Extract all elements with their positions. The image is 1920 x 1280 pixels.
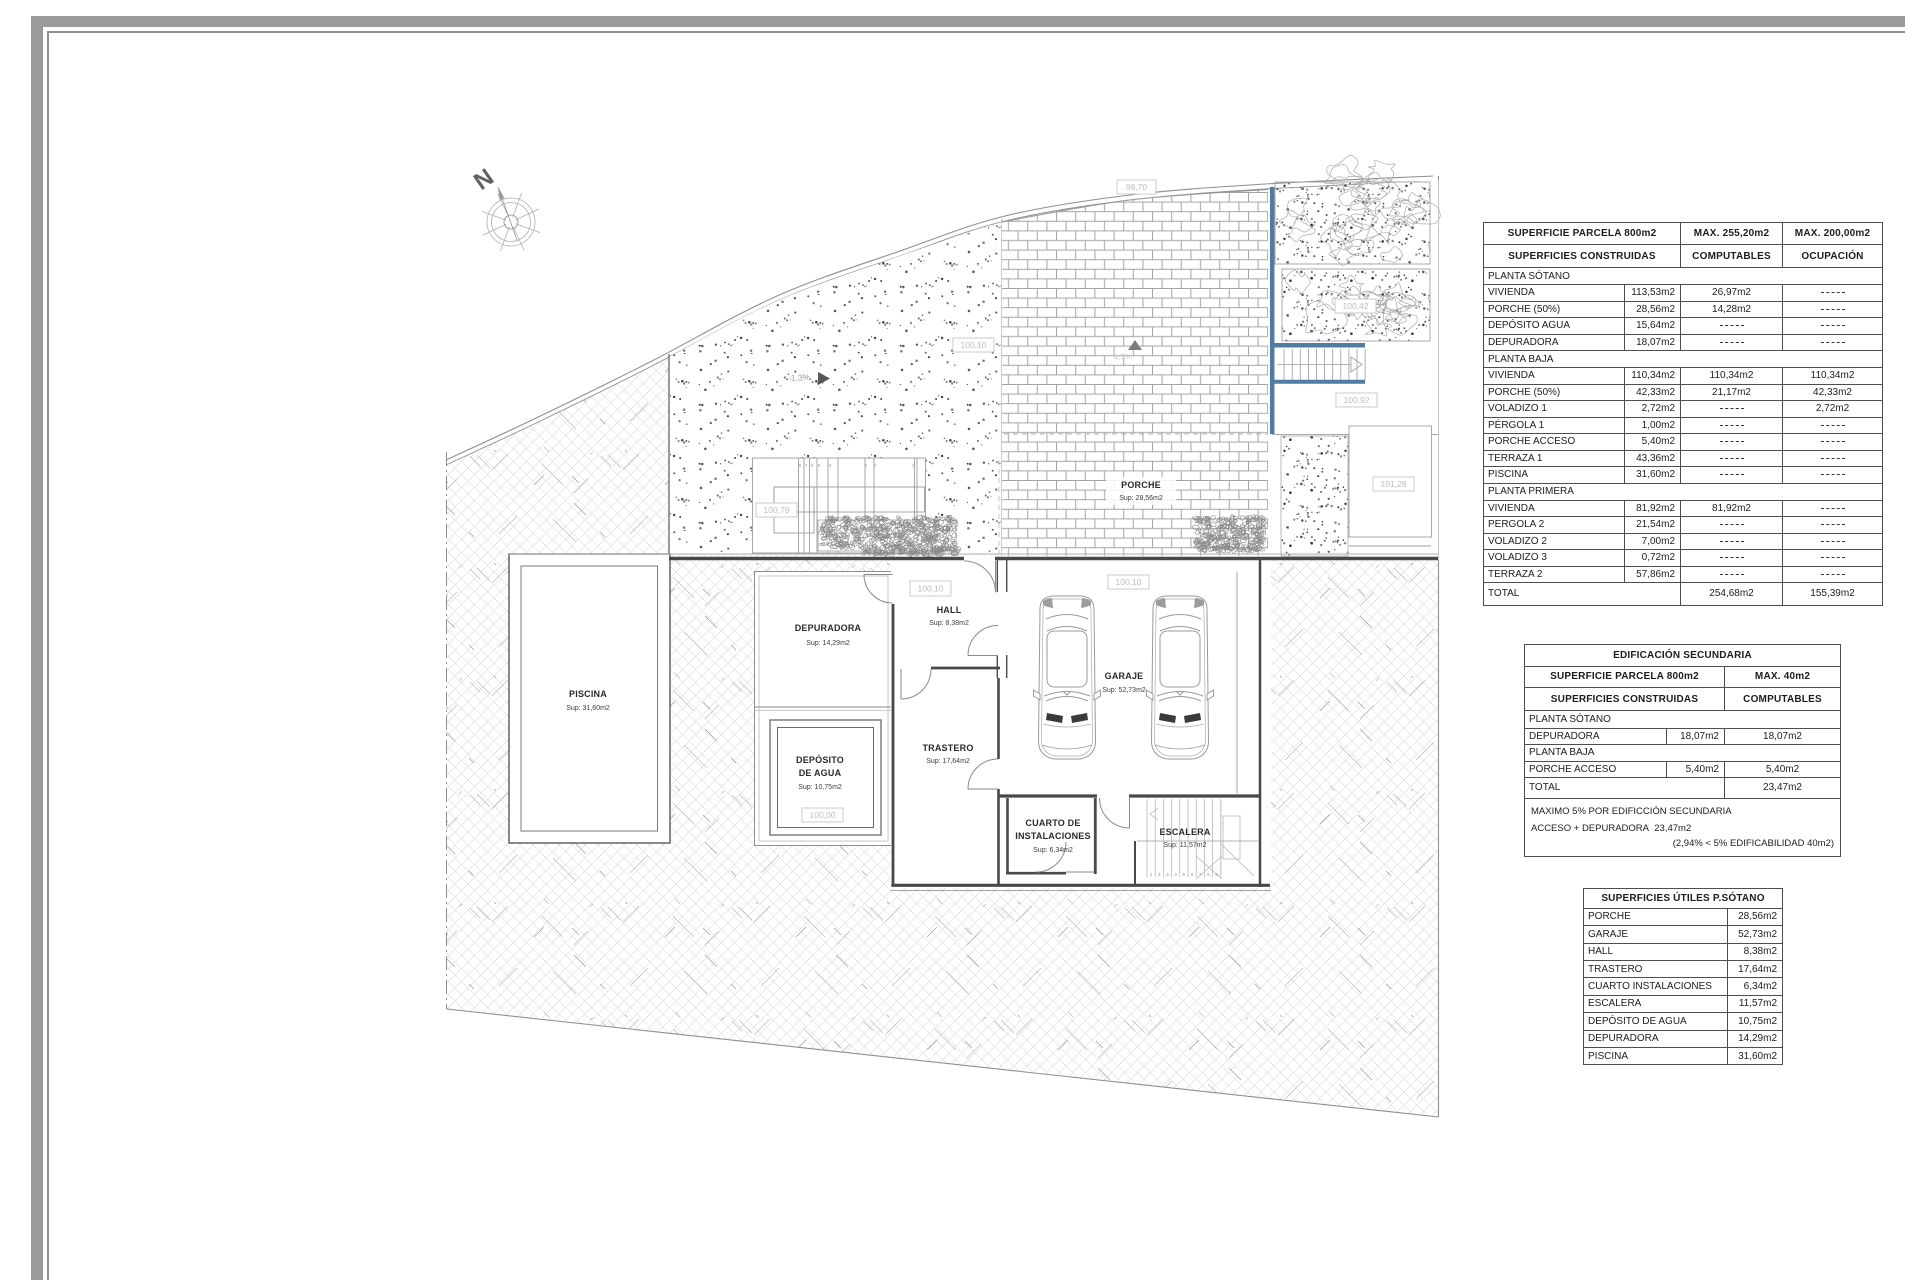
svg-text:100,10: 100,10 [961, 340, 987, 350]
svg-text:PISCINA: PISCINA [569, 689, 607, 699]
svg-text:ESCALERA: ESCALERA [1159, 827, 1210, 837]
svg-text:CUARTO DE: CUARTO DE [1025, 818, 1080, 828]
svg-text:N: N [469, 164, 499, 196]
svg-text:100,92: 100,92 [1344, 395, 1370, 405]
svg-text:GARAJE: GARAJE [1105, 671, 1144, 681]
svg-text:100,00: 100,00 [810, 810, 836, 820]
svg-text:DEPÓSITO: DEPÓSITO [796, 754, 844, 765]
svg-text:98,70: 98,70 [1126, 182, 1148, 192]
svg-text:Sup: 31,60m2: Sup: 31,60m2 [566, 705, 610, 712]
svg-text:Sup: 8,38m2: Sup: 8,38m2 [929, 620, 969, 627]
svg-text:Sup: 14,29m2: Sup: 14,29m2 [806, 640, 850, 647]
svg-text:Sup: 28,56m2: Sup: 28,56m2 [1119, 495, 1163, 502]
svg-text:100,79: 100,79 [764, 505, 790, 515]
svg-text:INSTALACIONES: INSTALACIONES [1015, 831, 1090, 841]
svg-text:100,42: 100,42 [1343, 301, 1369, 311]
svg-text:4,3%: 4,3% [1114, 352, 1133, 362]
svg-text:Sup: 52,73m2: Sup: 52,73m2 [1102, 687, 1146, 694]
svg-text:PORCHE: PORCHE [1121, 480, 1161, 490]
svg-text:HALL: HALL [937, 605, 962, 615]
svg-text:DEPURADORA: DEPURADORA [795, 623, 862, 633]
svg-text:TRASTERO: TRASTERO [922, 743, 973, 753]
svg-text:Sup: 11,57m2: Sup: 11,57m2 [1163, 842, 1206, 849]
svg-text:101,28: 101,28 [1381, 479, 1407, 489]
svg-text:Sup: 6,34m2: Sup: 6,34m2 [1033, 847, 1073, 854]
svg-text:DE AGUA: DE AGUA [799, 768, 842, 778]
svg-text:Sup: 17,64m2: Sup: 17,64m2 [926, 758, 970, 765]
svg-text:1,3%: 1,3% [791, 372, 811, 383]
svg-text:100,10: 100,10 [1116, 577, 1142, 587]
svg-text:Sup: 10,75m2: Sup: 10,75m2 [798, 784, 842, 791]
svg-text:100,10: 100,10 [918, 584, 944, 594]
